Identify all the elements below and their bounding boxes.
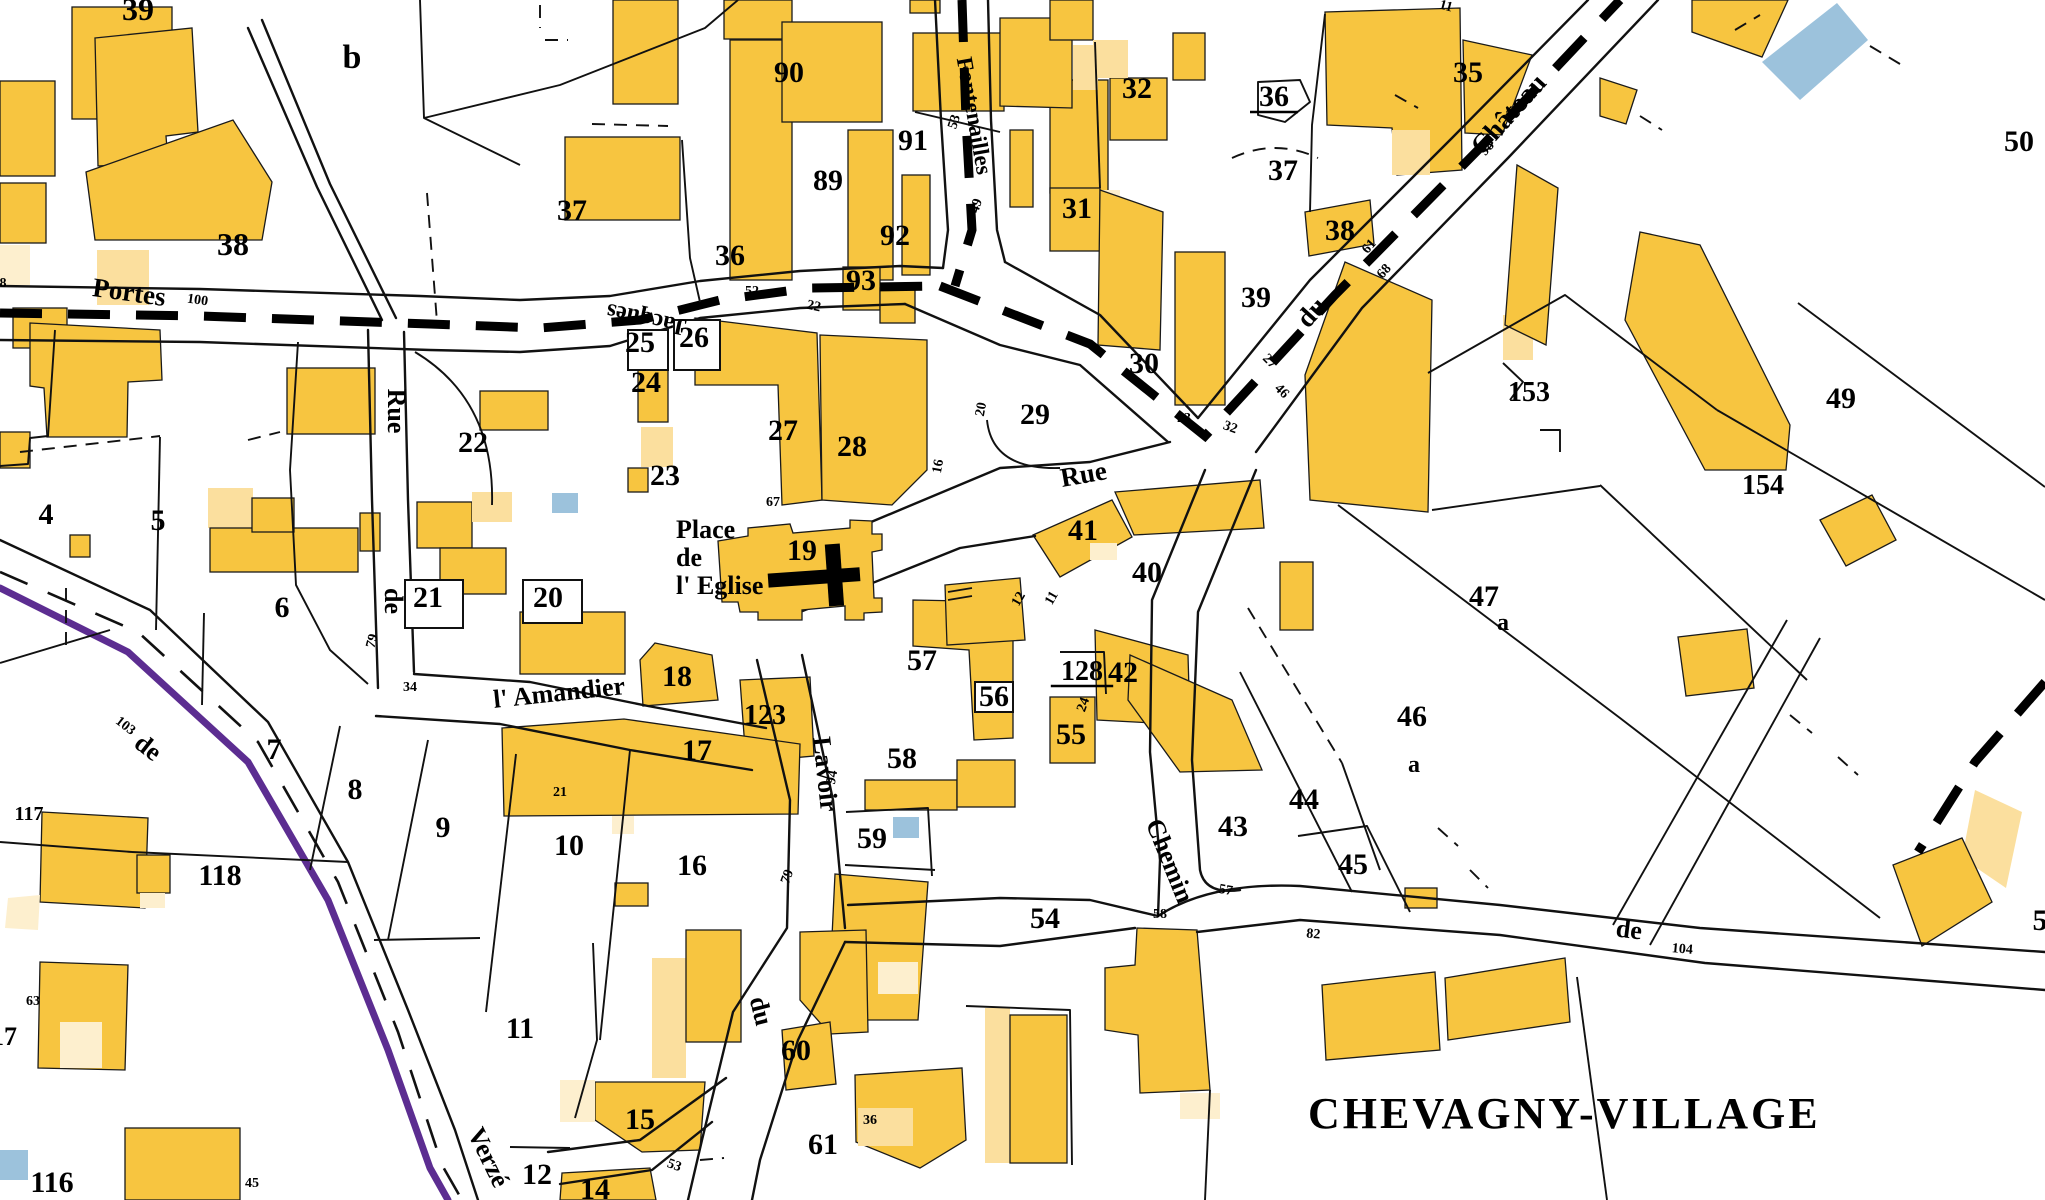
parcel-label-28: 28	[837, 430, 867, 463]
place-label-line2: de	[676, 543, 702, 572]
parcel-label-37: 37	[557, 194, 587, 227]
road-number-67: 67	[766, 495, 780, 510]
parcel-label-17: 17	[0, 1022, 17, 1051]
parcel-label-45: 45	[1338, 848, 1368, 881]
parcel-label-15: 15	[625, 1103, 655, 1136]
street-label-Rue: Rue	[382, 389, 411, 434]
place-label-line3: l' Eglise	[676, 571, 763, 600]
parcel-label-128: 128	[1061, 656, 1103, 687]
parcel-label-38: 38	[1325, 214, 1355, 247]
parcel-label-10: 10	[554, 829, 584, 862]
parcel-label-91: 91	[898, 124, 928, 157]
parcel-label-35: 35	[1453, 56, 1483, 89]
cadastral-map-svg: 1381001035349522211986861233246272016671…	[0, 0, 2045, 1200]
parcel-label-6: 6	[275, 591, 290, 624]
parcel-label-36: 36	[715, 239, 745, 272]
parcel-label-60: 60	[781, 1034, 811, 1067]
road-number-21: 21	[553, 785, 567, 800]
parcel-label-41: 41	[1068, 514, 1098, 547]
street-label-de: de	[1614, 914, 1643, 946]
parcel-label-37: 37	[1268, 154, 1298, 187]
parcel-label-42: 42	[1108, 656, 1138, 689]
parcel-label-57: 57	[907, 644, 937, 677]
road-number-20: 20	[973, 401, 990, 417]
parcel-label-30: 30	[1129, 347, 1159, 380]
parcel-label-154: 154	[1742, 470, 1784, 501]
parcel-label-5: 5	[151, 504, 166, 537]
parcel-label-a: a	[1497, 610, 1509, 636]
pool	[552, 493, 578, 513]
road-number-58: 58	[1153, 907, 1167, 922]
pool	[893, 817, 919, 838]
parcel-label-93: 93	[846, 264, 876, 297]
parcel-label-47: 47	[1469, 580, 1499, 613]
road-number-34: 34	[403, 680, 417, 695]
pool	[0, 1150, 28, 1180]
parcel-label-24: 24	[631, 366, 661, 399]
road-number-36: 36	[863, 1113, 877, 1128]
parcel-label-117: 117	[15, 803, 44, 825]
parcel-label-19: 19	[787, 534, 817, 567]
parcel-label-56: 56	[979, 680, 1009, 713]
parcel-label-38: 38	[217, 226, 249, 262]
parcel-label-55: 55	[1056, 718, 1086, 751]
parcel-label-b: b	[343, 39, 362, 76]
parcel-label-27: 27	[768, 414, 798, 447]
parcel-label-46: 46	[1397, 700, 1427, 733]
parcel-label-39: 39	[1241, 281, 1271, 314]
place-label-line1: Place	[676, 515, 735, 544]
parcel-label-36: 36	[1259, 80, 1289, 113]
parcel-label-153: 153	[1508, 377, 1550, 408]
parcel-label-18: 18	[662, 660, 692, 693]
road-number-23: 23	[1177, 411, 1191, 426]
road-number-57: 57	[1217, 882, 1233, 899]
road-number-45: 45	[245, 1176, 259, 1191]
parcel-label-14: 14	[580, 1173, 610, 1200]
parcel-label-54: 54	[1030, 902, 1060, 935]
parcel-label-116: 116	[30, 1166, 73, 1199]
parcel-label-59: 59	[857, 822, 887, 855]
parcel-label-90: 90	[774, 56, 804, 89]
parcel-label-23: 23	[650, 459, 680, 492]
parcel-label-40: 40	[1132, 556, 1162, 589]
parcel-label-8: 8	[348, 773, 363, 806]
parcel-label-58: 58	[887, 742, 917, 775]
parcel-label-123: 123	[744, 700, 786, 731]
parcel-label-17: 17	[682, 734, 712, 767]
road-number-100: 100	[186, 292, 209, 310]
parcel-label-11: 11	[506, 1012, 534, 1045]
parcel-label-29: 29	[1020, 398, 1050, 431]
road-number-16: 16	[930, 458, 947, 474]
parcel-label-7: 7	[267, 733, 282, 766]
road-number-82: 82	[1306, 926, 1321, 942]
parcel-label-92: 92	[880, 219, 910, 252]
parcel-label-39: 39	[122, 0, 154, 27]
parcel-label-4: 4	[39, 498, 54, 531]
road-number-104: 104	[1671, 941, 1693, 958]
parcel-label-26: 26	[679, 321, 709, 354]
parcel-label-5: 5	[2033, 904, 2045, 937]
parcel-label-a: a	[1408, 752, 1420, 778]
parcel-label-49: 49	[1826, 382, 1856, 415]
parcel-label-20: 20	[533, 581, 563, 614]
street-label-de: de	[379, 588, 408, 614]
parcel-label-12: 12	[522, 1158, 552, 1191]
parcel-label-16: 16	[677, 849, 707, 882]
map-canvas: 1381001035349522211986861233246272016671…	[0, 0, 2045, 1200]
parcel-label-50: 50	[2004, 125, 2034, 158]
parcel-label-61: 61	[808, 1128, 838, 1161]
road-number-138: 138	[0, 276, 7, 291]
parcel-label-21: 21	[413, 581, 443, 614]
parcel-label-32: 32	[1122, 72, 1152, 105]
parcel-label-43: 43	[1218, 810, 1248, 843]
parcel-label-9: 9	[436, 811, 451, 844]
road-number-63: 63	[26, 994, 40, 1009]
road-number-52: 52	[745, 284, 759, 299]
parcel-label-118: 118	[198, 859, 241, 892]
parcel-label-31: 31	[1062, 192, 1092, 225]
village-title: CHEVAGNY-VILLAGE	[1308, 1089, 1821, 1138]
parcel-label-89: 89	[813, 164, 843, 197]
parcel-label-44: 44	[1289, 783, 1319, 816]
parcel-label-25: 25	[625, 326, 655, 359]
parcel-label-22: 22	[458, 426, 488, 459]
